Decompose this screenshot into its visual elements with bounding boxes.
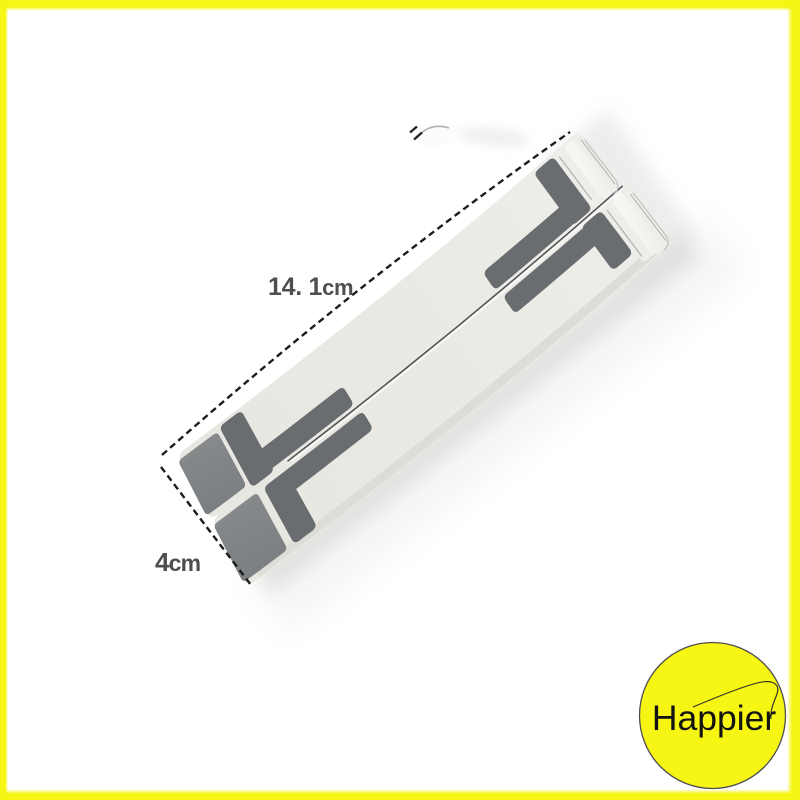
svg-text:Happier: Happier [652, 698, 776, 738]
svg-text:14. 1cm: 14. 1cm [268, 273, 353, 301]
svg-text:4cm: 4cm [155, 547, 201, 577]
